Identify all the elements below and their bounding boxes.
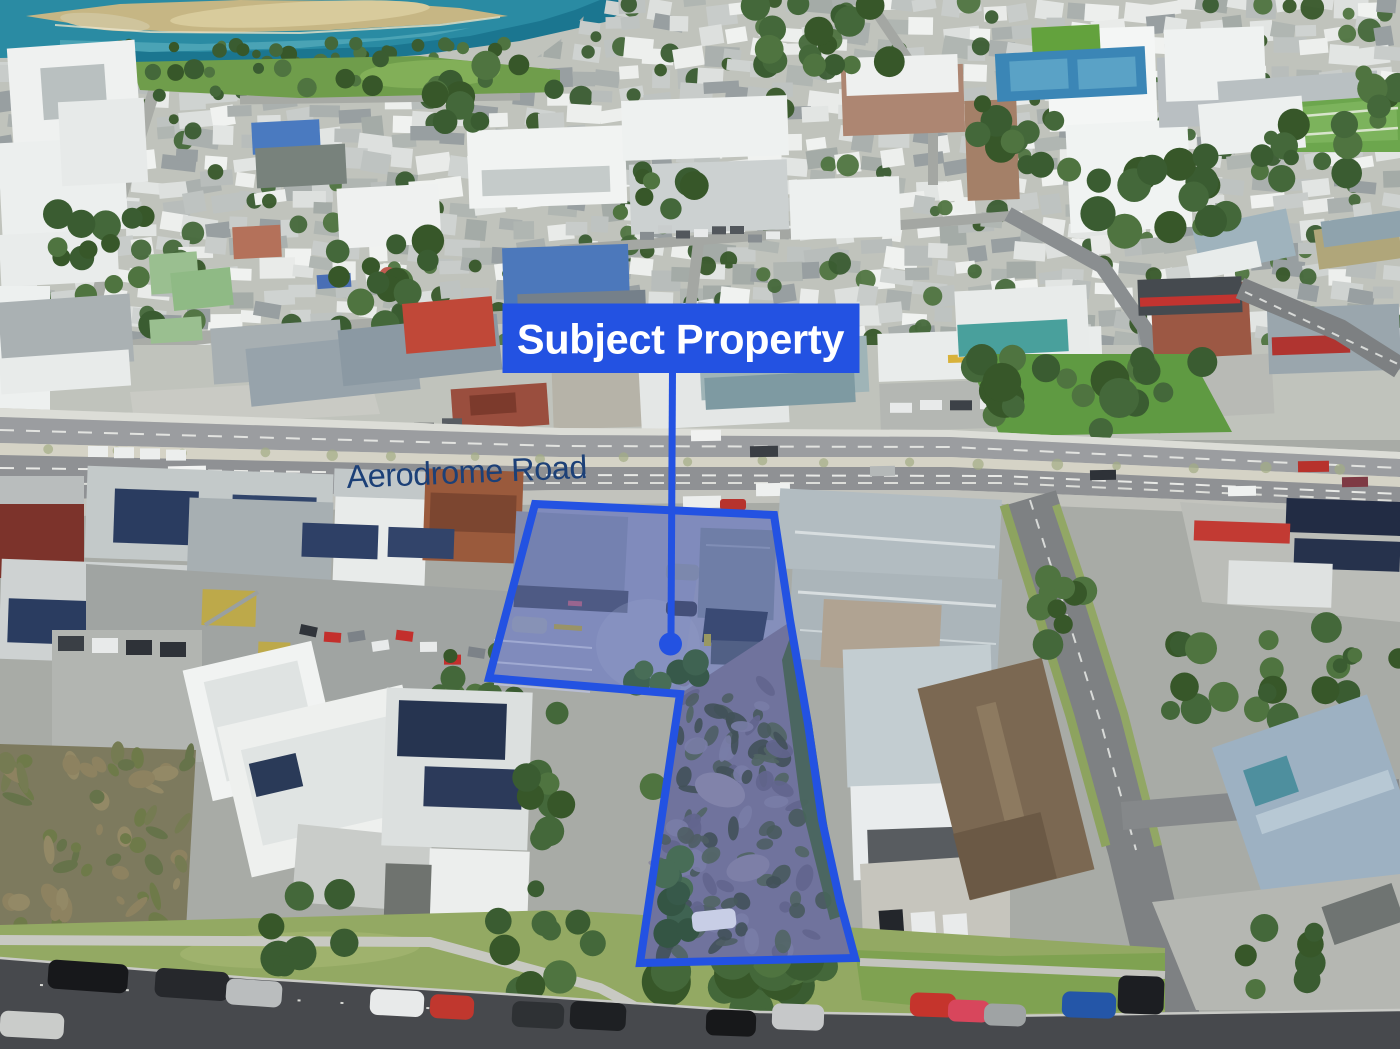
svg-text:Subject Property: Subject Property [517,316,845,363]
